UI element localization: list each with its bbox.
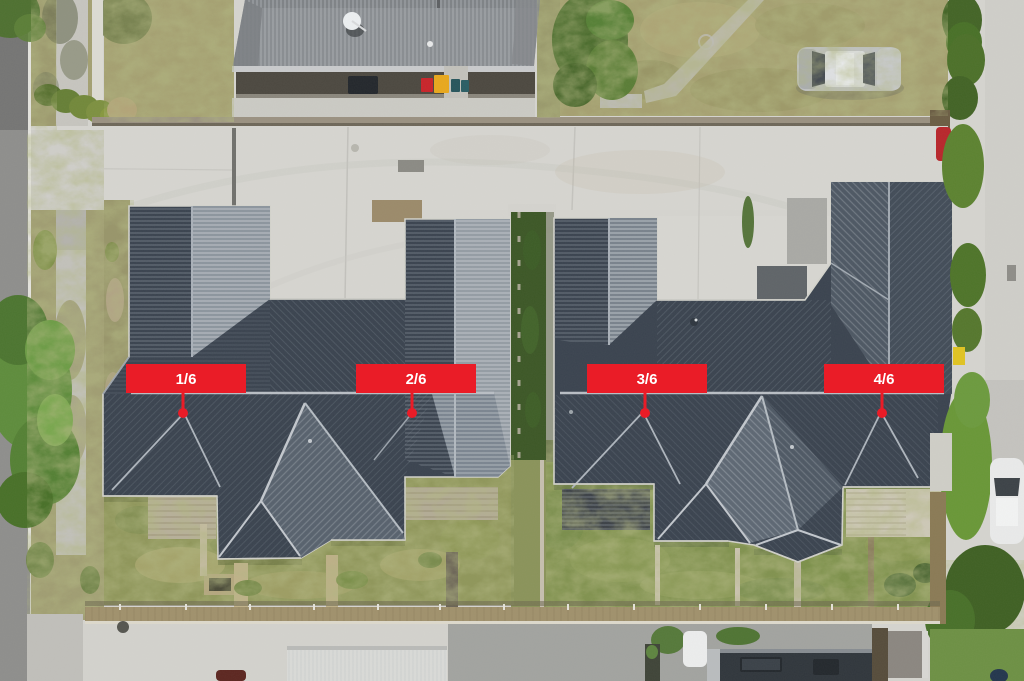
- svg-text:2/6: 2/6: [406, 371, 427, 388]
- svg-text:1/6: 1/6: [176, 371, 197, 388]
- svg-text:4/6: 4/6: [874, 371, 895, 388]
- svg-text:3/6: 3/6: [637, 371, 658, 388]
